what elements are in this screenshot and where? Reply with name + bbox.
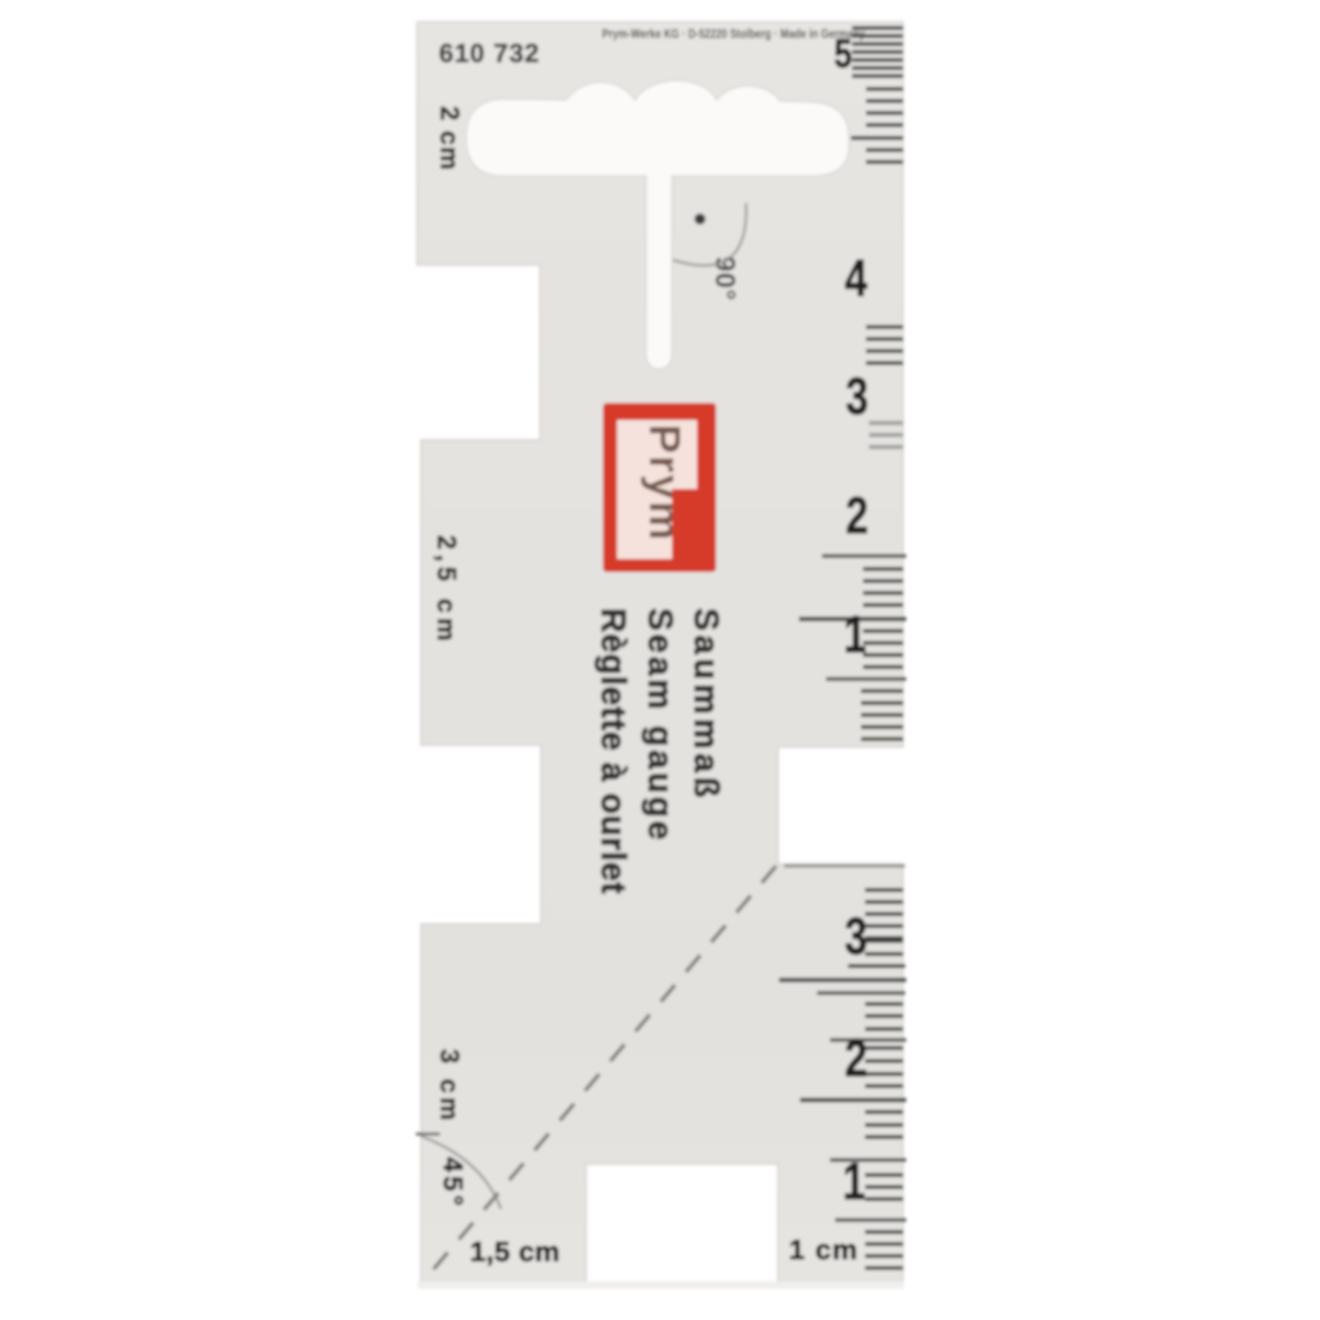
svg-text:1 cm: 1 cm bbox=[789, 1234, 859, 1265]
svg-text:Règlette à ourlet: Règlette à ourlet bbox=[594, 608, 632, 895]
svg-text:Saummaß: Saummaß bbox=[687, 608, 725, 802]
svg-text:610 732: 610 732 bbox=[439, 38, 540, 68]
svg-text:45°: 45° bbox=[438, 1157, 468, 1210]
svg-text:3: 3 bbox=[846, 367, 869, 425]
svg-text:90°: 90° bbox=[710, 256, 741, 301]
svg-text:2: 2 bbox=[846, 486, 869, 544]
svg-text:2 cm: 2 cm bbox=[435, 106, 465, 171]
svg-text:Prym-Werke KG · D-52220 Stolbe: Prym-Werke KG · D-52220 Stolberg · Made … bbox=[602, 27, 865, 41]
svg-text:3: 3 bbox=[845, 907, 868, 965]
svg-text:1,5 cm: 1,5 cm bbox=[470, 1236, 560, 1267]
svg-text:Seam gauge: Seam gauge bbox=[641, 608, 679, 843]
svg-text:5: 5 bbox=[834, 31, 852, 76]
svg-text:1: 1 bbox=[844, 605, 867, 663]
svg-text:1: 1 bbox=[843, 1152, 866, 1210]
svg-text:2,5 cm: 2,5 cm bbox=[432, 535, 462, 646]
svg-text:2: 2 bbox=[845, 1029, 868, 1087]
svg-text:4: 4 bbox=[845, 249, 868, 307]
svg-text:3 cm: 3 cm bbox=[435, 1049, 465, 1124]
